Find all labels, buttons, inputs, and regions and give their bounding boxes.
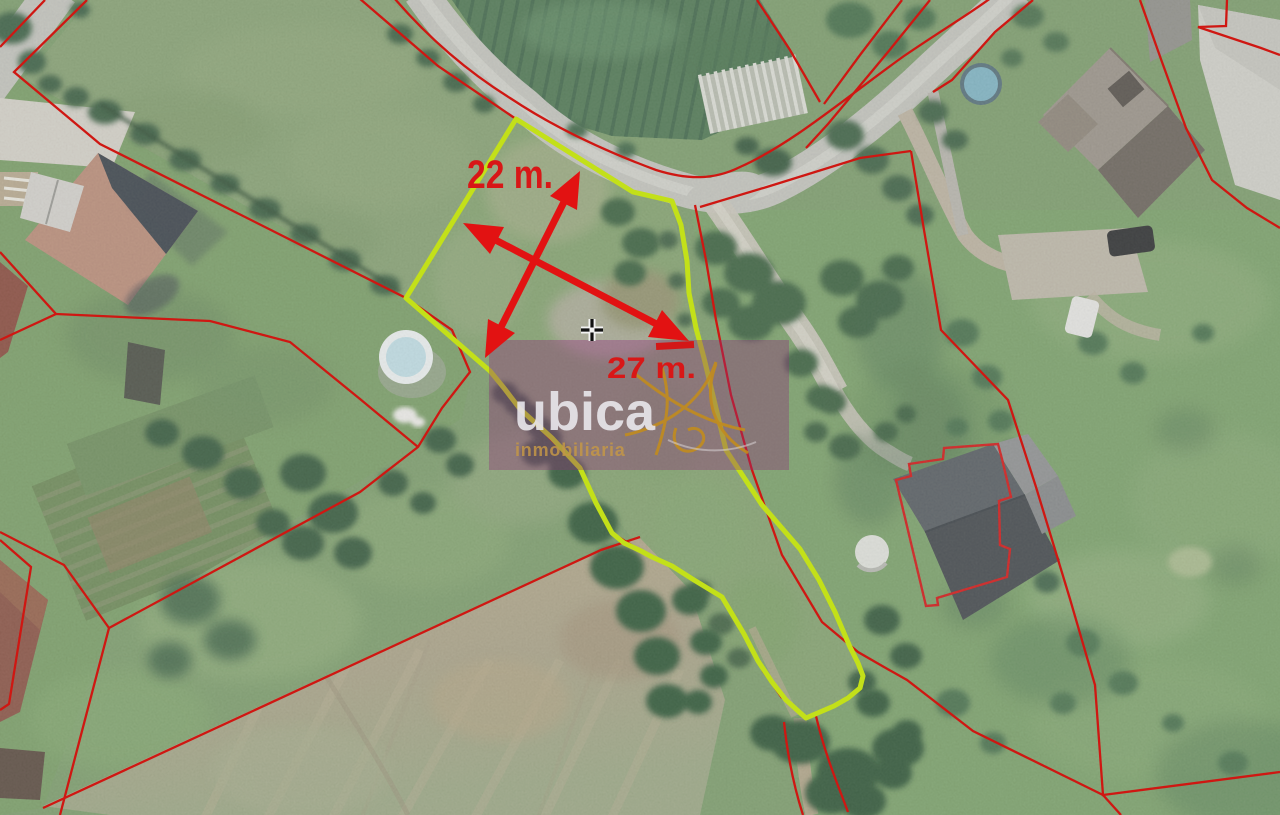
svg-text:ubica: ubica — [514, 382, 656, 442]
svg-text:inmobiliaria: inmobiliaria — [515, 440, 626, 460]
svg-text:22 m.: 22 m. — [467, 153, 553, 197]
svg-text:27 m.: 27 m. — [607, 352, 696, 385]
